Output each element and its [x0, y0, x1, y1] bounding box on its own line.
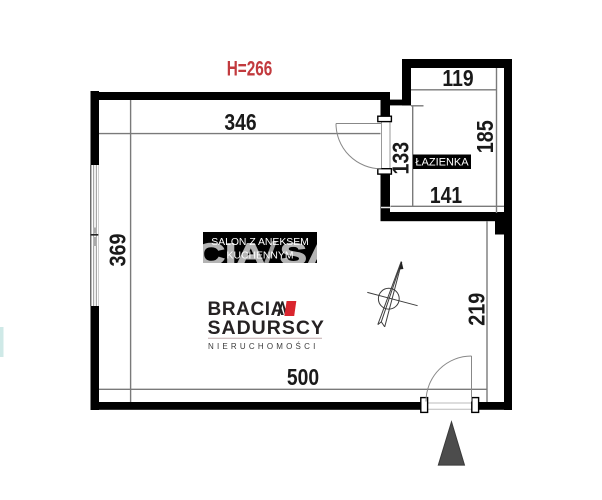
svg-text:NIERUCHOMOŚCI: NIERUCHOMOŚCI: [208, 342, 319, 351]
svg-text:KUCHENNYM: KUCHENNYM: [227, 251, 294, 262]
svg-text:H=266: H=266: [227, 56, 273, 80]
svg-text:141: 141: [430, 184, 462, 209]
svg-text:SALON Z ANEKSEM: SALON Z ANEKSEM: [211, 237, 309, 248]
svg-text:369: 369: [105, 233, 131, 266]
svg-text:119: 119: [442, 67, 473, 92]
svg-text:346: 346: [224, 111, 256, 136]
svg-text:219: 219: [464, 293, 490, 326]
svg-text:500: 500: [287, 366, 319, 391]
svg-text:ŁAZIENKA: ŁAZIENKA: [415, 157, 469, 169]
svg-text:185: 185: [473, 120, 499, 153]
svg-text:SADURSCY: SADURSCY: [208, 317, 325, 339]
